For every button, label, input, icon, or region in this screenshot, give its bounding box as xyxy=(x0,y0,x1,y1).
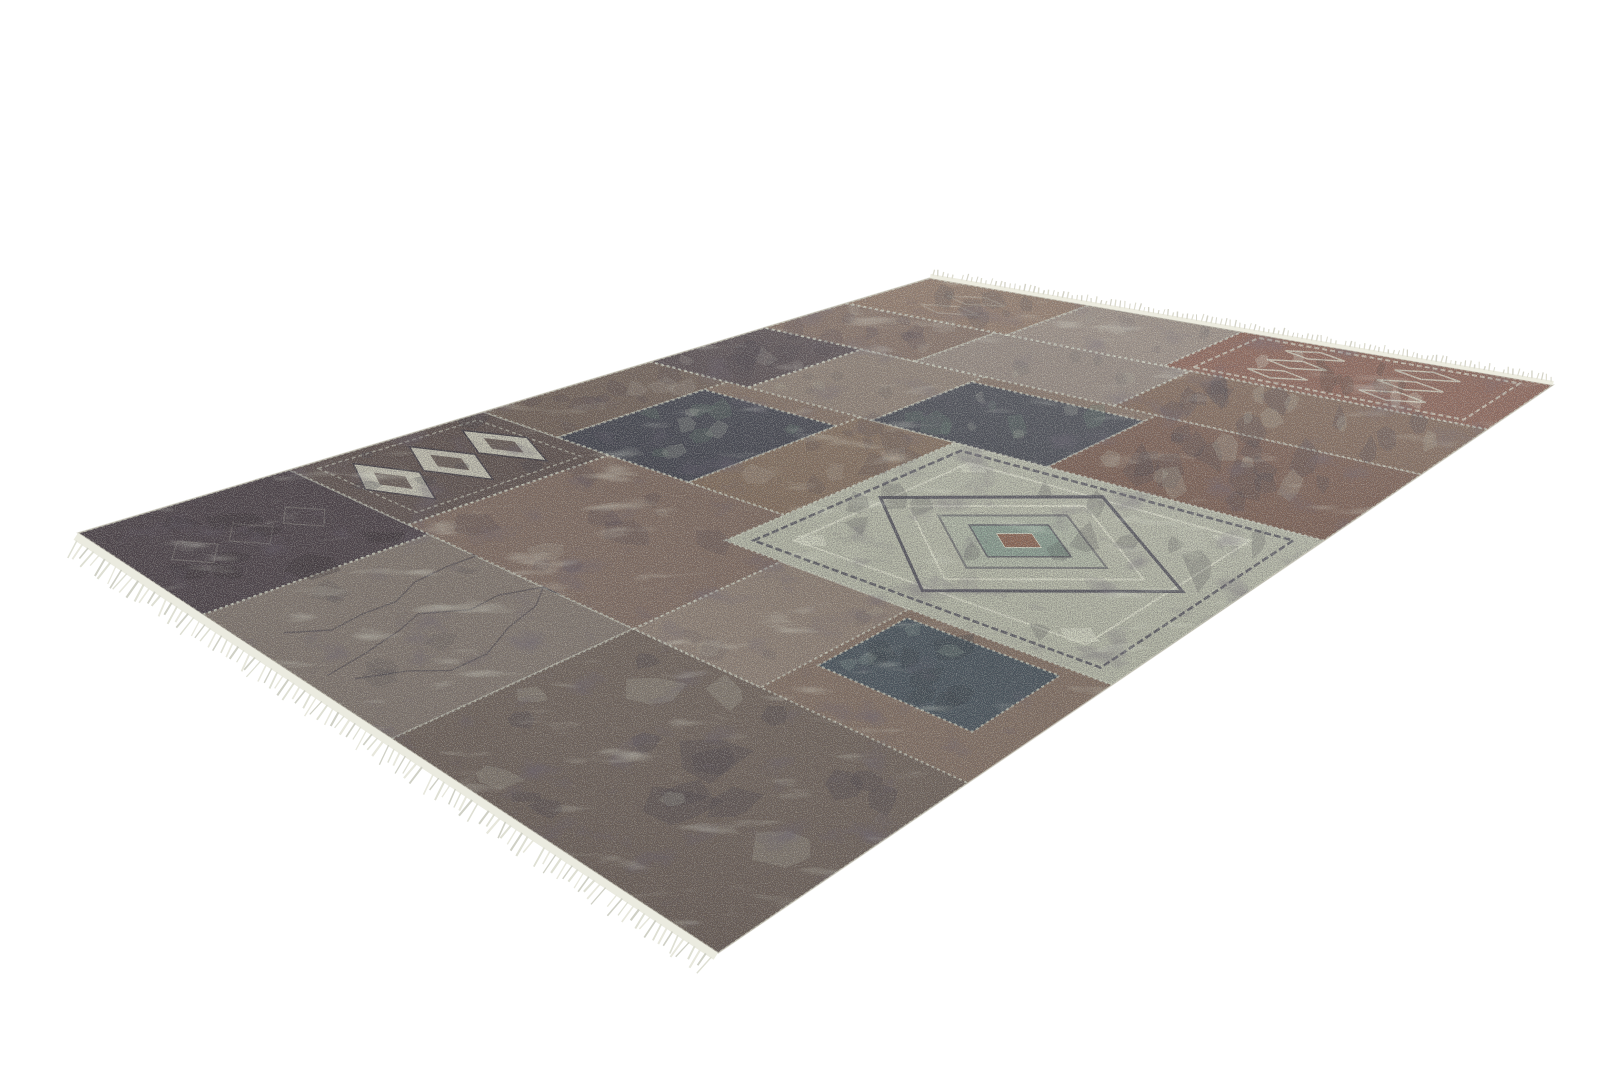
patchwork-rug-image xyxy=(0,0,1600,1067)
product-photo-stage xyxy=(0,0,1600,1067)
